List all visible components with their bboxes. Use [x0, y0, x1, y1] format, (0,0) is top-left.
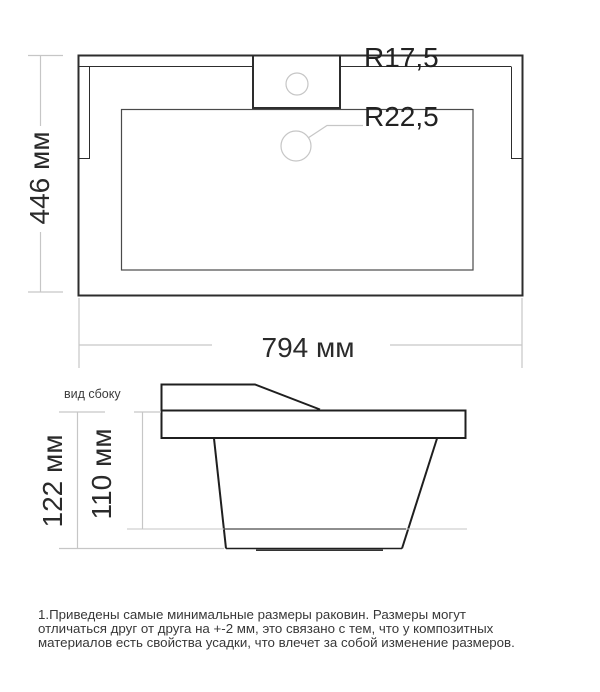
- right-rim-notch: [512, 67, 523, 159]
- height-dimension-label: 446 мм: [26, 132, 54, 225]
- basin-inner-rect: [122, 110, 474, 271]
- footer-note-line-2: отличаться друг от друга на +-2 мм, это …: [38, 622, 515, 636]
- side-view-caption: вид сбоку: [64, 388, 121, 402]
- sink-dimension-drawing: R17,5 R22,5 446 мм 794 мм вид сбоку 122 …: [0, 0, 600, 692]
- bowl-depth-dimension-label: 110 мм: [88, 429, 116, 520]
- footer-note: 1.Приведены самые минимальные размеры ра…: [38, 608, 515, 650]
- drain-radius-label: R22,5: [364, 103, 439, 131]
- overall-height-dimension-label: 122 мм: [39, 435, 67, 528]
- backsplash-profile: [162, 385, 321, 411]
- counter-slab: [162, 411, 466, 439]
- faucet-radius-label: R17,5: [364, 44, 439, 72]
- footer-note-line-1: 1.Приведены самые минимальные размеры ра…: [38, 608, 515, 622]
- left-rim-notch: [79, 67, 90, 159]
- drain-hole-circle: [281, 131, 311, 161]
- width-dimension-label: 794 мм: [262, 334, 355, 362]
- bowl-side-left: [214, 439, 226, 549]
- drain-leader-line: [308, 126, 363, 139]
- faucet-deck-box: [253, 56, 340, 109]
- top-view: [79, 56, 523, 296]
- side-view: [127, 385, 467, 551]
- footer-note-line-3: материалов есть свойства усадки, что вле…: [38, 636, 515, 650]
- bowl-side-right: [402, 439, 437, 549]
